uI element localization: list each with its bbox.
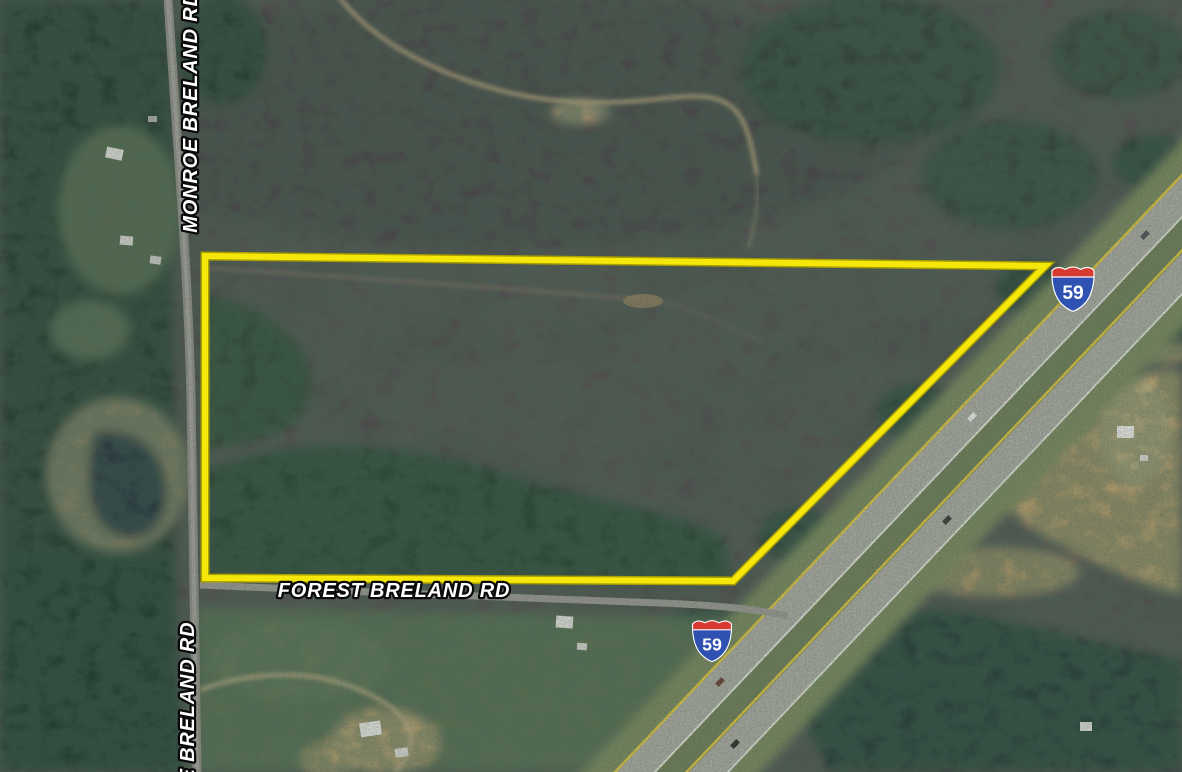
road-label-forest-breland: FOREST BRELAND RD: [278, 580, 511, 602]
satellite-map: MONROE BRELAND RD E BRELAND RD FOREST BR…: [0, 0, 1182, 772]
road-label-e-breland: E BRELAND RD: [177, 622, 199, 772]
shield-route-number: 59: [702, 634, 722, 654]
satellite-map-viewport[interactable]: MONROE BRELAND RD E BRELAND RD FOREST BR…: [0, 0, 1182, 772]
road-label-monroe-breland: MONROE BRELAND RD: [180, 0, 202, 233]
shield-route-number: 59: [1062, 283, 1083, 304]
